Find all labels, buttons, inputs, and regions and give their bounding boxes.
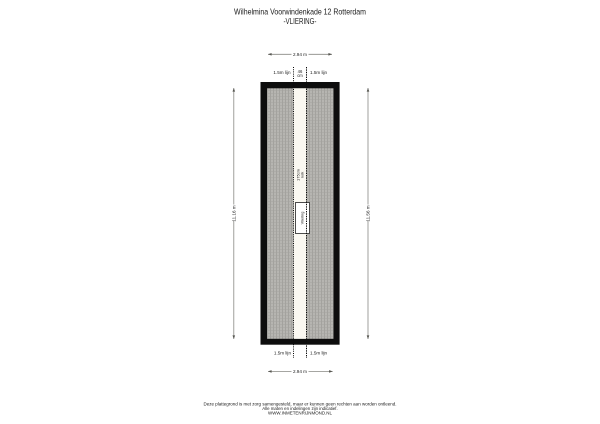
svg-text:1.5m lijn: 1.5m lijn [274,351,292,356]
svg-text:11.16 m: 11.16 m [232,205,237,221]
svg-text:1.5m lijn: 1.5m lijn [273,70,291,75]
svg-text:Vliering: Vliering [301,212,305,225]
svg-text:1.5m lijn: 1.5m lijn [310,70,328,75]
svg-text:11.56 m: 11.56 m [366,205,371,221]
svg-text:1.5m lijn: 1.5m lijn [310,351,328,356]
svg-text:-VLIERING-: -VLIERING- [284,16,317,26]
svg-text:2.94 m: 2.94 m [293,52,307,57]
svg-text:cm: cm [297,73,303,78]
svg-text:WWW.INMETENRIJNMOND.NL: WWW.INMETENRIJNMOND.NL [268,411,333,416]
svg-text:Wilhelmina Voorwindenkade 12 R: Wilhelmina Voorwindenkade 12 Rotterdam [234,6,366,16]
svg-text:2.94 m: 2.94 m [293,369,307,374]
svg-text:nok: nok [300,172,305,178]
